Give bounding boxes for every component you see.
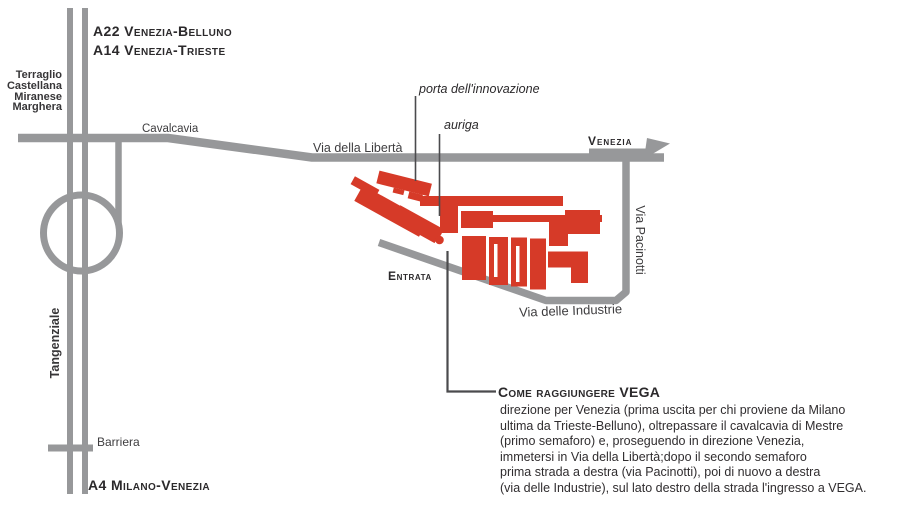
a22-label: A22 Venezia-Belluno	[93, 22, 232, 41]
building-long-bar-top	[420, 196, 563, 206]
cavalcavia-label: Cavalcavia	[142, 123, 198, 135]
exit-castellana: Castellana	[2, 81, 62, 92]
directions-line: (primo semaforo) e, proseguendo in direz…	[500, 434, 866, 450]
building-wide-slab	[549, 221, 568, 246]
a14-label: A14 Venezia-Trieste	[93, 41, 232, 60]
building-slab-4	[530, 239, 546, 290]
entrata-label: Entrata	[388, 269, 432, 283]
exit-marghera: Marghera	[2, 102, 62, 113]
a4-label: A4 Milano-Venezia	[88, 476, 210, 495]
building-l-bar	[548, 252, 588, 268]
directions-line: (via delle Industrie), sul lato destro d…	[500, 481, 866, 497]
directions-line: immetersi in Via della Libertà;dopo il s…	[500, 450, 866, 466]
directions-title: Come raggiungere VEGA	[498, 384, 660, 400]
directions-line: ultima da Trieste-Belluno), oltrepassare…	[500, 419, 866, 435]
via-pacinotti-label: Via Pacinotti	[633, 195, 647, 285]
building-dot	[435, 236, 444, 245]
building-bar2-right-block	[565, 210, 600, 234]
exit-destinations: Terraglio Castellana Miranese Marghera	[2, 70, 62, 113]
porta-innovazione-label: porta dell'innovazione	[419, 82, 540, 96]
via-della-liberta-label: Via della Libertà	[313, 141, 402, 155]
building-l-leg	[571, 267, 588, 283]
slab-slit-2	[516, 246, 520, 282]
vega-directions-map: A22 Venezia-Belluno A14 Venezia-Trieste …	[0, 0, 903, 519]
directions-text: direzione per Venezia (prima uscita per …	[500, 403, 866, 497]
directions-line: direzione per Venezia (prima uscita per …	[500, 403, 866, 419]
venezia-label: Venezia	[588, 134, 632, 148]
auriga-label: auriga	[444, 118, 479, 132]
building-auriga	[440, 205, 458, 234]
tangenziale-label: Tangenziale	[48, 298, 62, 388]
directions-line: prima strada a destra (via Pacinotti), p…	[500, 465, 866, 481]
building-slab-2	[489, 237, 508, 285]
roundabout-interchange	[44, 195, 120, 271]
barriera-label: Barriera	[97, 435, 140, 449]
highway-labels: A22 Venezia-Belluno A14 Venezia-Trieste	[93, 22, 232, 60]
building-slab-1	[462, 236, 486, 280]
slab-slit-1	[494, 244, 498, 277]
